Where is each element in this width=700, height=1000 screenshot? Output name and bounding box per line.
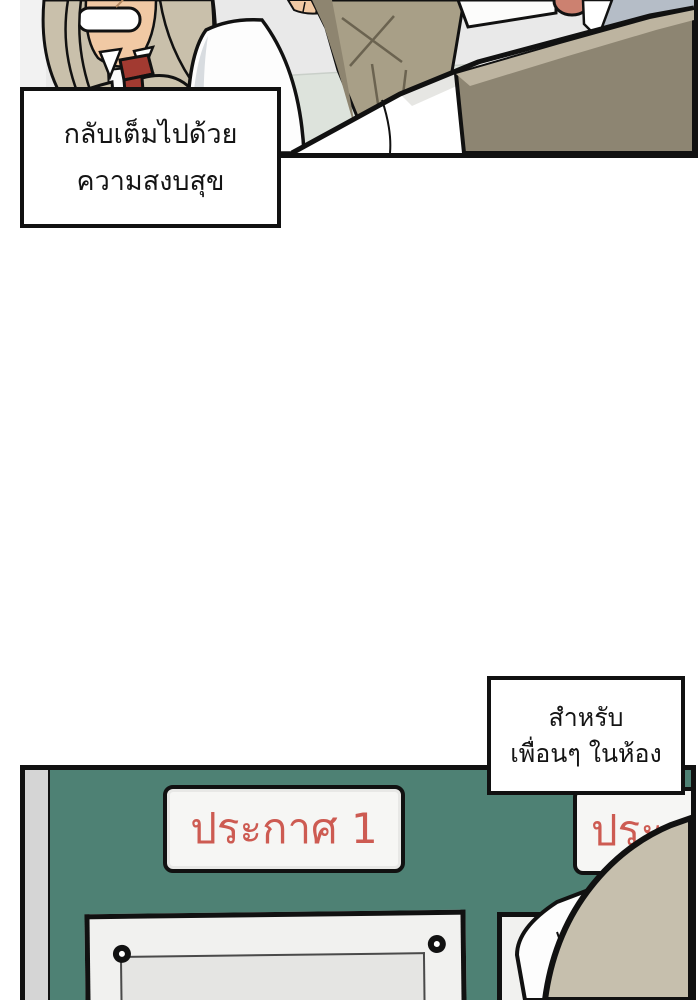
wall-corner-strip — [25, 770, 50, 1000]
narration-box-2: สำหรับ เพื่อนๆ ในห้อง — [487, 676, 685, 795]
notice-board — [84, 910, 466, 1000]
narration-1-line-1: กลับเต็มไปด้วย — [64, 111, 238, 158]
sign-1-label: ประกาศ 1 — [190, 796, 378, 862]
narration-2-line-2: เพื่อนๆ ในห้อง — [510, 736, 662, 772]
screw-icon — [428, 935, 446, 953]
sign-2-label: ประ — [591, 798, 663, 864]
panel-bottom: ประกาศ 1 ประ — [20, 765, 696, 1000]
announcement-sign-1: ประกาศ 1 — [163, 785, 405, 873]
comic-page: กลับเต็มไปด้วย ความสงบสุข สำหรับ เพื่อนๆ… — [0, 0, 700, 1000]
narration-1-line-2: ความสงบสุข — [77, 158, 225, 205]
student-grin-teeth — [78, 8, 140, 31]
narration-box-1: กลับเต็มไปด้วย ความสงบสุข — [20, 87, 281, 228]
notice-board-partial — [497, 912, 607, 1000]
notice-board-paper — [120, 952, 426, 1000]
announcement-sign-2: ประ — [573, 787, 691, 875]
narration-2-line-1: สำหรับ — [548, 700, 623, 736]
screw-icon — [113, 945, 131, 963]
